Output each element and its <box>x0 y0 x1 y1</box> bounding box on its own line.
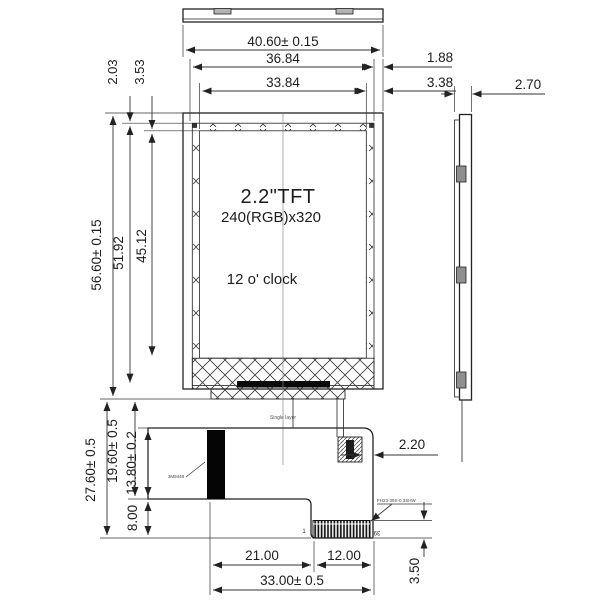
pin1-label: 1 <box>302 529 306 535</box>
side-view-front-layer <box>455 120 460 397</box>
dim-margin-active-right: 3.38 <box>427 75 453 90</box>
cog-ic-bar <box>237 381 330 388</box>
single-layer-label: Single layer <box>270 415 296 421</box>
drawing-canvas: 2.2"TFT 240(RGB)x320 12 o' clock Single … <box>0 0 600 600</box>
dim-fpc-total-width: 33.00± 0.5 <box>260 573 324 588</box>
fpc-component-core <box>346 440 354 459</box>
top-view-tab-right <box>336 9 353 15</box>
stiffener-leader <box>186 462 205 477</box>
side-view-body <box>460 115 472 401</box>
dim-fpc-lower: 8.00 <box>125 505 140 531</box>
dim-fpc-to-step: 19.60± 0.5 <box>105 419 120 483</box>
fpc-connector <box>313 521 370 539</box>
dim-active-width: 33.84 <box>266 75 300 90</box>
dim-fpc-connector-width: 12.00 <box>327 548 361 563</box>
dim-active-height: 45.12 <box>134 229 149 263</box>
connector-leader <box>371 504 392 521</box>
fpc-stiffener <box>207 430 225 499</box>
dim-connector-height: 3.50 <box>407 558 422 584</box>
dim-total-height: 56.60± 0.15 <box>89 219 104 290</box>
dim-margin-window-right: 1.88 <box>427 50 453 65</box>
fpc: Single layer 3M9448 FH23-39S-0.3SHW 1 39 <box>148 399 432 538</box>
front-view: 2.2"TFT 240(RGB)x320 12 o' clock <box>183 113 383 465</box>
side-view <box>455 115 472 463</box>
bezel-corner-mark-right <box>369 123 374 128</box>
pin39-label: 39 <box>373 529 380 535</box>
side-view-tab-bottom <box>457 372 467 388</box>
tft-lcd-mechanical-drawing: 2.2"TFT 240(RGB)x320 12 o' clock Single … <box>0 0 600 600</box>
dim-margin-window-top: 2.03 <box>105 59 120 84</box>
dim-thickness: 2.70 <box>515 77 541 92</box>
dimensions-bottom: 21.00 12.00 33.00± 0.5 3.50 2.20 <box>210 437 438 595</box>
dim-total-width: 40.60± 0.15 <box>247 34 318 49</box>
dim-window-height: 51.92 <box>111 236 126 270</box>
side-view-tab-top <box>457 166 467 182</box>
glass-ledge <box>211 389 345 399</box>
stiffener-label: 3M9448 <box>168 474 185 479</box>
bezel-corner-mark-left <box>193 123 198 128</box>
bezel-xmarks-right <box>367 131 373 358</box>
display-resolution: 240(RGB)x320 <box>221 209 321 226</box>
connector-part-label: FH23-39S-0.3SHW <box>377 498 417 503</box>
dim-window-width: 36.84 <box>266 51 300 66</box>
viewing-direction: 12 o' clock <box>227 271 298 288</box>
display-title: 2.2"TFT <box>240 186 315 208</box>
dim-connector-offset: 2.20 <box>399 437 425 452</box>
top-view-tab-left <box>214 9 231 15</box>
dim-margin-active-top: 3.53 <box>132 59 147 84</box>
dim-fpc-total-height: 27.60± 0.5 <box>83 438 98 502</box>
dimensions-fpc-left: 27.60± 0.5 19.60± 0.5 13.80± 0.2 8.00 <box>83 402 311 538</box>
side-view-tab-middle <box>457 267 467 283</box>
dim-fpc-left-width: 21.00 <box>245 548 279 563</box>
bezel-xmarks-left <box>193 131 199 358</box>
dim-fpc-upper: 13.80± 0.2 <box>124 431 139 495</box>
top-view <box>183 9 383 23</box>
